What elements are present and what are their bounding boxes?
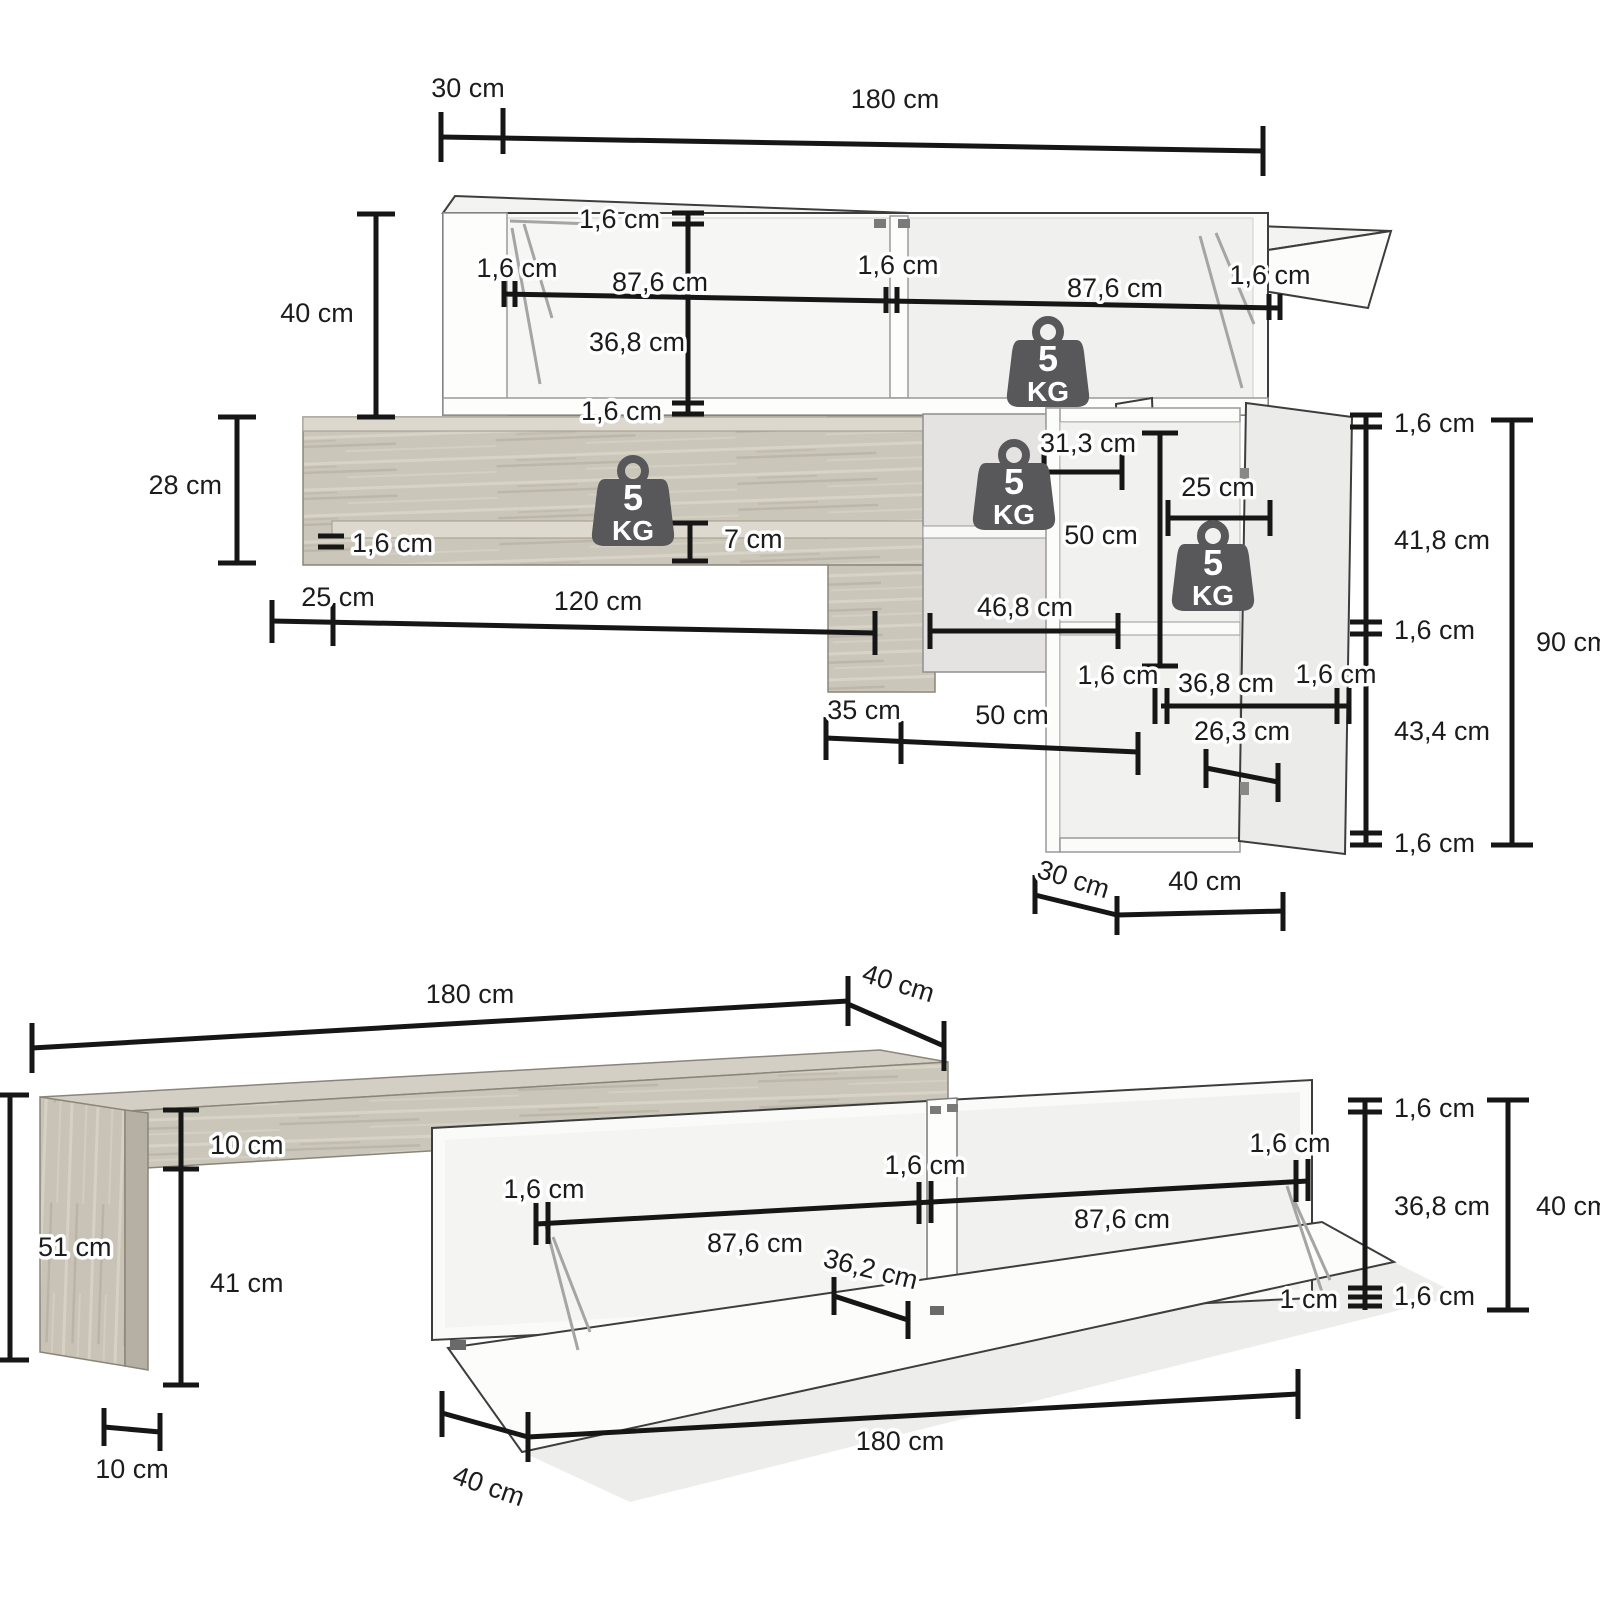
dim-label-b-width-bottom: 180 cm — [856, 1426, 945, 1456]
cabinet-foot-left — [450, 1340, 466, 1350]
right-cabinet-open-door — [1239, 403, 1352, 854]
dim-label-shelf-gap: 7 cm — [724, 524, 783, 554]
dim-label-b-cab-height: 40 cm — [1536, 1191, 1600, 1221]
dim-b-cab-height: 40 cm — [1487, 1100, 1600, 1310]
dim-label-upper-divider: 1,6 cm — [857, 250, 938, 280]
dim-label-right-top: 1,6 cm — [1394, 408, 1475, 438]
dim-label-b-cab-inner-left: 87,6 cm — [707, 1228, 803, 1258]
dim-label-door-inner: 26,3 cm — [1194, 716, 1290, 746]
dim-upper-height: 40 cm — [280, 214, 395, 417]
dim-label-right-inner-bottom: 43,4 cm — [1394, 716, 1490, 746]
hinge-mark-2 — [898, 219, 910, 228]
furniture-dimension-sheet: 30 cm 180 cm 40 cm 1,6 cm 36,8 cm 1,6 cm — [0, 0, 1600, 1600]
weight-value: 5 — [623, 477, 643, 518]
dim-label-right-inner-top: 41,8 cm — [1394, 525, 1490, 555]
dim-label-mid-inner-top: 31,3 cm — [1040, 428, 1136, 458]
dim-shelf-height: 28 cm — [148, 417, 256, 563]
dim-label-b-cab-left: 1,6 cm — [503, 1174, 584, 1204]
top-diagram: 30 cm 180 cm 40 cm 1,6 cm 36,8 cm 1,6 cm — [148, 73, 1600, 935]
dim-label-b-depth-bottom: 40 cm — [449, 1460, 528, 1512]
dim-label-b-cab-top: 1,6 cm — [1394, 1093, 1475, 1123]
right-cabinet-bottom-panel — [1060, 838, 1240, 852]
dim-label-upper-inner-right: 87,6 cm — [1067, 273, 1163, 303]
flap-hinge-1 — [930, 1106, 941, 1114]
bottom-diagram: 180 cm 40 cm 51 cm 10 cm 41 cm — [0, 958, 1600, 1512]
upper-cabinet-compartment-left — [507, 218, 890, 398]
dim-label-b-cab-inner-height: 36,8 cm — [1394, 1191, 1490, 1221]
dim-label-rb-offset: 35 cm — [827, 695, 901, 725]
dim-label-rb-inner: 36,8 cm — [1178, 668, 1274, 698]
dim-label-shelf-width: 120 cm — [554, 586, 643, 616]
dim-label-b-leg-inner: 41 cm — [210, 1268, 284, 1298]
weight-unit: KG — [612, 515, 654, 546]
dim-label-mid-inner-bottom: 46,8 cm — [977, 592, 1073, 622]
dim-label-top-depth: 30 cm — [431, 73, 505, 103]
upper-cabinet-left-side — [443, 213, 507, 415]
dim-label-upper-right-thickness: 1,6 cm — [1229, 260, 1310, 290]
dim-label-right-height: 90 cm — [1536, 627, 1600, 657]
right-door-hinge-bottom — [1240, 782, 1249, 795]
dim-label-top-width: 180 cm — [851, 84, 940, 114]
dim-label-b-top-thickness: 10 cm — [210, 1130, 284, 1160]
bench-leg-side — [125, 1110, 148, 1370]
dim-b-leg: 10 cm 41 cm — [163, 1110, 284, 1385]
dim-right-column: 1,6 cm 41,8 cm 1,6 cm 43,4 cm 1,6 cm — [1350, 408, 1490, 858]
dim-label-b-width-top: 180 cm — [426, 979, 515, 1009]
dim-label-upper-inner-height: 36,8 cm — [589, 327, 685, 357]
dim-label-upper-height: 40 cm — [280, 298, 354, 328]
hinge-mark-1 — [874, 219, 886, 228]
right-cabinet-top-panel — [1046, 408, 1240, 422]
dim-label-shelf-offset: 25 cm — [301, 582, 375, 612]
weight-unit: KG — [1192, 580, 1234, 611]
dim-label-upper-top-thickness: 1,6 cm — [579, 204, 660, 234]
flap-hinge-2 — [947, 1104, 958, 1112]
dim-label-upper-inner-left: 87,6 cm — [612, 267, 708, 297]
dim-top-width: 30 cm 180 cm — [431, 73, 1263, 176]
dim-label-upper-bottom-thickness: 1,6 cm — [581, 396, 662, 426]
dim-label-b-total-height: 51 cm — [38, 1232, 112, 1262]
dim-shelf-width: 25 cm 120 cm — [272, 582, 875, 655]
dim-label-mid-height: 50 cm — [1064, 520, 1138, 550]
dim-label-right-bottom: 1,6 cm — [1394, 828, 1475, 858]
weight-unit: KG — [993, 499, 1035, 530]
dim-label-b-depth-top: 40 cm — [859, 958, 938, 1008]
dim-label-shelf-height: 28 cm — [148, 470, 222, 500]
dimension-diagram-canvas: 30 cm 180 cm 40 cm 1,6 cm 36,8 cm 1,6 cm — [0, 0, 1600, 1600]
dim-label-b-cab-gap: 1 cm — [1279, 1284, 1338, 1314]
weight-value: 5 — [1203, 542, 1223, 583]
dim-label-rb-left: 1,6 cm — [1077, 660, 1158, 690]
dim-label-b-cab-flap: 1,6 cm — [1249, 1128, 1330, 1158]
dim-label-rb-right: 1,6 cm — [1295, 659, 1376, 689]
dim-label-b-cab-inner-right: 87,6 cm — [1074, 1204, 1170, 1234]
dim-label-b-leg-width: 10 cm — [95, 1454, 169, 1484]
dim-label-upper-left-thickness: 1,6 cm — [476, 253, 557, 283]
dim-right-total-height: 90 cm — [1491, 420, 1600, 845]
dim-label-rb-span: 50 cm — [975, 700, 1049, 730]
dim-label-right-shelf-depth: 25 cm — [1181, 472, 1255, 502]
weight-unit: KG — [1027, 376, 1069, 407]
weight-value: 5 — [1004, 461, 1024, 502]
weight-value: 5 — [1038, 338, 1058, 379]
dim-label-shelf-thickness: 1,6 cm — [352, 528, 433, 558]
cabinet-foot-mid — [930, 1306, 944, 1315]
dim-label-b-cab-bottom: 1,6 cm — [1394, 1281, 1475, 1311]
dim-label-b-cab-divider: 1,6 cm — [884, 1150, 965, 1180]
dim-right-base: 30 cm 40 cm — [1034, 854, 1283, 935]
dim-label-right-shelf: 1,6 cm — [1394, 615, 1475, 645]
dim-label-base-width: 40 cm — [1168, 866, 1242, 896]
dim-b-leg-width: 10 cm — [95, 1408, 169, 1484]
